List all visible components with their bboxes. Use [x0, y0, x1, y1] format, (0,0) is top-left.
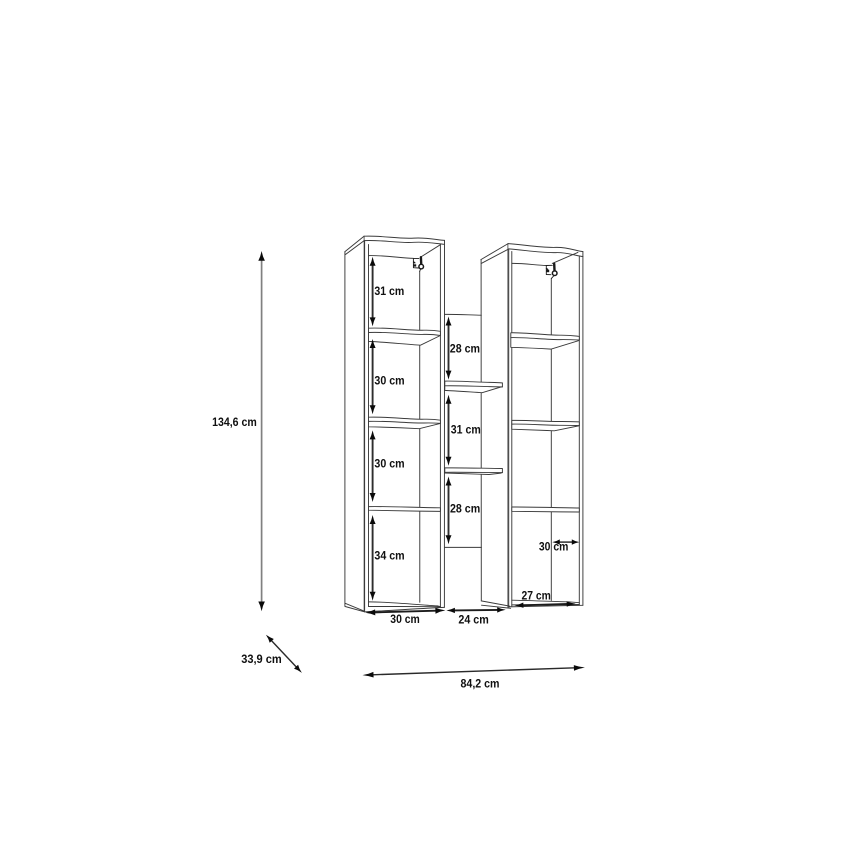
svg-text:30 cm: 30 cm — [390, 612, 420, 626]
svg-text:31 cm: 31 cm — [374, 284, 404, 298]
svg-text:34 cm: 34 cm — [374, 548, 404, 562]
svg-text:30 cm: 30 cm — [374, 456, 404, 470]
svg-text:24 cm: 24 cm — [458, 612, 488, 626]
svg-text:30 cm: 30 cm — [539, 541, 569, 554]
svg-text:31 cm: 31 cm — [451, 423, 481, 437]
svg-text:30 cm: 30 cm — [374, 373, 404, 387]
svg-text:33,9 cm: 33,9 cm — [241, 652, 282, 666]
svg-text:27 cm: 27 cm — [522, 588, 551, 602]
svg-text:134,6 cm: 134,6 cm — [212, 415, 257, 429]
svg-text:84,2 cm: 84,2 cm — [461, 676, 500, 690]
svg-text:28 cm: 28 cm — [450, 502, 480, 516]
svg-text:28 cm: 28 cm — [450, 342, 480, 356]
